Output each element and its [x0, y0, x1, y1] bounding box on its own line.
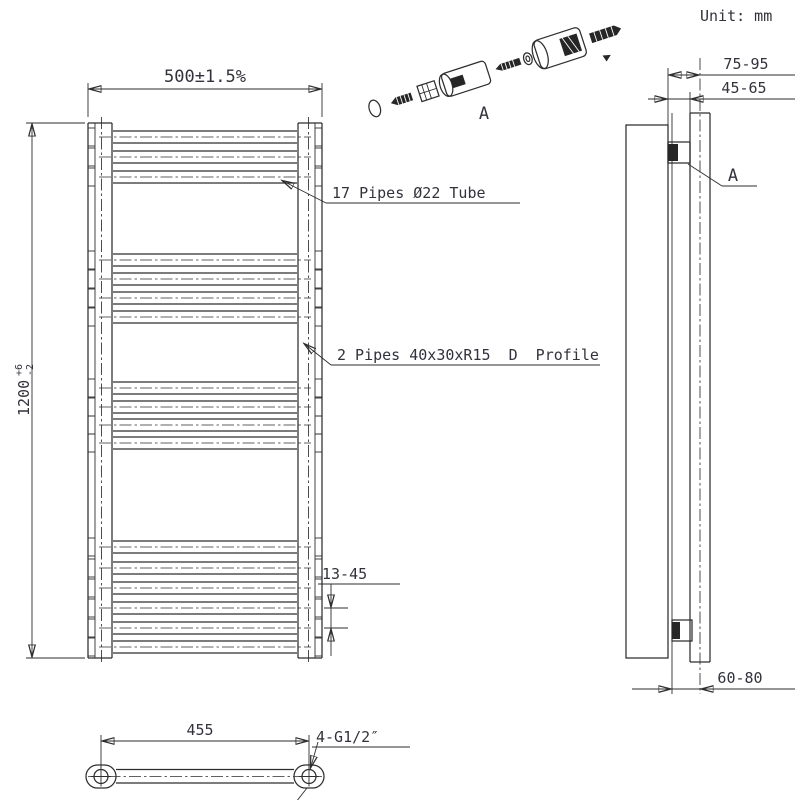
pipes-callout: 17 Pipes Ø22 Tube	[282, 181, 520, 204]
pipe-row	[88, 559, 322, 577]
pipe-row	[88, 270, 322, 288]
pipe-row	[88, 289, 322, 307]
pipe-gap-text: 13-45	[322, 565, 367, 583]
wall-offset-text: 75-95	[723, 55, 768, 73]
pipe-row	[88, 638, 322, 656]
screw	[390, 93, 413, 107]
unit-label: Unit: mm	[700, 7, 772, 25]
side-view: 75-95 45-65 60-80 A	[626, 55, 795, 694]
centers-dimension: 455	[101, 721, 309, 768]
pipe-row	[88, 579, 322, 597]
washer	[522, 52, 534, 66]
connection-callout: 4-G1/2″	[296, 728, 410, 800]
wall-plug	[417, 81, 439, 102]
left-rail	[88, 117, 112, 664]
pipe-row	[88, 538, 322, 556]
bracket-depth-dimension: 45-65	[648, 79, 795, 113]
pipes-label: 17 Pipes Ø22 Tube	[332, 184, 486, 202]
pipe-rows	[88, 128, 322, 656]
pipe-row	[88, 148, 322, 166]
profile-callout: 2 Pipes 40x30xR15 D Profile	[304, 344, 600, 366]
anchor-screw	[589, 24, 623, 43]
pipe-row	[88, 128, 322, 146]
technical-drawing-page: Unit: mm 500±1.5%	[0, 0, 800, 800]
right-connection	[299, 767, 319, 787]
bracket-housing	[529, 27, 588, 72]
pipe-row	[88, 251, 322, 269]
screw	[494, 58, 521, 73]
pipe-row	[88, 398, 322, 416]
pipe-gap-dimension: 13-45	[318, 565, 400, 656]
wall-offset-dimension: 75-95	[668, 55, 795, 75]
pipe-row	[88, 308, 322, 326]
side-detail-callout: A	[688, 164, 757, 186]
width-dim-text: 500±1.5%	[164, 67, 246, 87]
profile-label: 2 Pipes 40x30xR15 D Profile	[337, 346, 599, 364]
wedge	[603, 53, 613, 62]
height-dimension: 1200 +6 -2	[14, 123, 85, 658]
exploded-view: A	[365, 14, 630, 136]
height-dim-text: 1200	[15, 380, 33, 416]
end-cap	[367, 99, 383, 119]
connection-label: 4-G1/2″	[316, 728, 379, 746]
pipe-row	[88, 599, 322, 617]
height-tol-upper: +6	[14, 364, 25, 376]
pipe-row	[88, 416, 322, 434]
left-connection	[91, 767, 111, 787]
height-tol-lower: -2	[25, 364, 36, 376]
bottom-offset-dimension: 60-80	[632, 669, 795, 689]
bottom-bracket	[672, 620, 692, 641]
centers-dim-text: 455	[186, 721, 213, 739]
pipe-row	[88, 379, 322, 397]
exploded-detail-label: A	[479, 104, 489, 124]
drawing-svg: Unit: mm 500±1.5%	[0, 0, 800, 800]
top-bracket	[668, 142, 690, 163]
pipe-row	[88, 619, 322, 637]
bracket-barrel	[437, 60, 492, 98]
front-view: 500±1.5% 1200 +6 -2 17 Pipes Ø22 Tube 2 …	[14, 67, 600, 664]
side-detail-label: A	[728, 166, 738, 186]
bottom-view: 455 4-G1/2″	[86, 721, 410, 800]
bracket-depth-text: 45-65	[721, 79, 766, 97]
width-dimension: 500±1.5%	[88, 67, 322, 117]
bottom-offset-text: 60-80	[717, 669, 762, 687]
pipe-row	[88, 434, 322, 452]
brick-wall	[626, 125, 668, 658]
side-tube	[690, 58, 710, 694]
